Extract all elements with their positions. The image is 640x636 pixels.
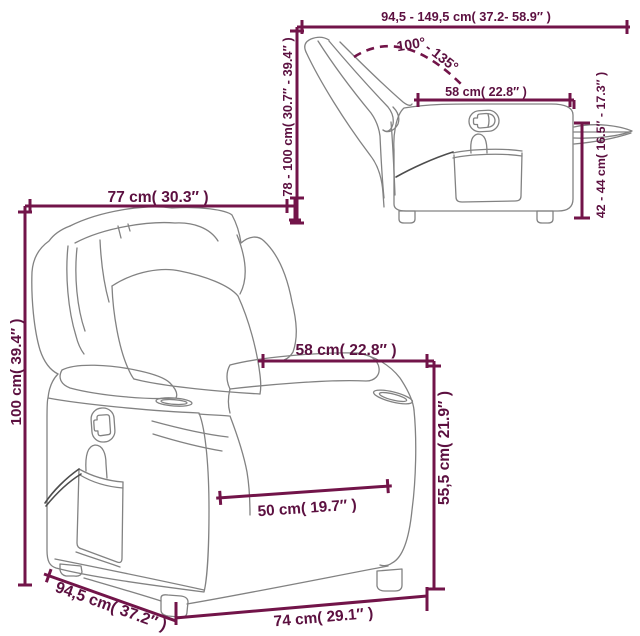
svg-text:58 cm( 22.8″ ): 58 cm( 22.8″ ) bbox=[295, 342, 396, 359]
svg-text:77 cm( 30.3″ ): 77 cm( 30.3″ ) bbox=[107, 189, 208, 206]
svg-text:78 - 100 cm( 30.7″ - 39.4″ ): 78 - 100 cm( 30.7″ - 39.4″ ) bbox=[280, 37, 295, 196]
svg-text:50 cm( 19.7″ ): 50 cm( 19.7″ ) bbox=[257, 496, 357, 520]
svg-text:58 cm( 22.8″ ): 58 cm( 22.8″ ) bbox=[445, 85, 527, 99]
svg-text:55,5 cm( 21.9″ ): 55,5 cm( 21.9″ ) bbox=[436, 391, 453, 505]
svg-text:94,5 cm( 37.2″ ): 94,5 cm( 37.2″ ) bbox=[53, 579, 169, 634]
svg-text:42 - 44 cm( 16.5″ - 17.3″ ): 42 - 44 cm( 16.5″ - 17.3″ ) bbox=[594, 72, 608, 218]
svg-text:94,5 - 149,5 cm( 37.2- 58.9″ ): 94,5 - 149,5 cm( 37.2- 58.9″ ) bbox=[381, 9, 551, 24]
svg-text:- 135°: - 135° bbox=[422, 39, 461, 75]
svg-text:100 cm( 39.4″ ): 100 cm( 39.4″ ) bbox=[8, 319, 25, 426]
